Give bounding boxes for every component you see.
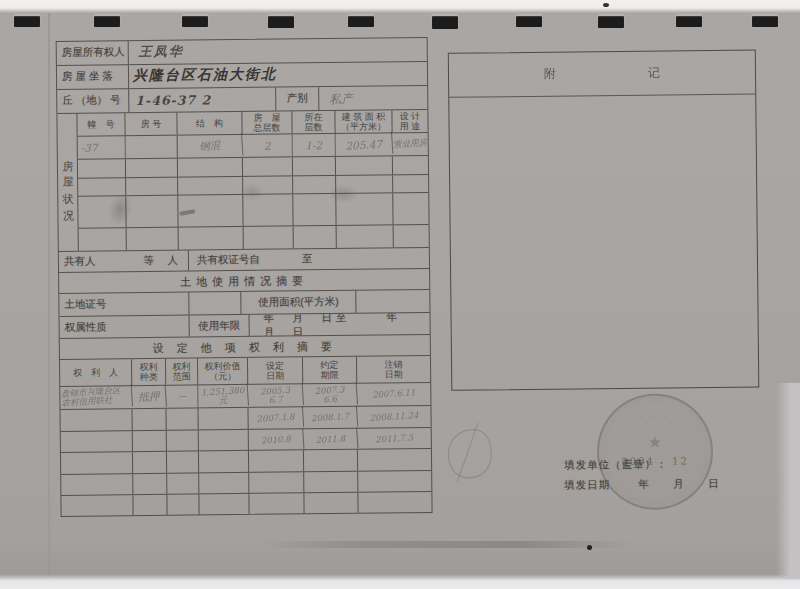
nature-label: 权属性质: [60, 316, 190, 338]
plot-label: 丘 （地） 号: [57, 89, 129, 113]
cancel-date-value: 2011.7.5: [357, 426, 431, 451]
house-status-vertical-label: 房屋状况: [57, 113, 78, 250]
building-no-value: -37: [78, 137, 126, 159]
land-cert-label: 土地证号: [59, 293, 189, 316]
plot-value: 1-46-37 2: [129, 87, 276, 111]
structure-value: 钢混: [177, 134, 243, 160]
category-value: 私产: [319, 84, 428, 112]
term-value: 2008.1.7: [303, 405, 358, 429]
col-building-no: 幢 号: [77, 113, 125, 136]
plot-row: 丘 （地） 号 1-46-37 2 产别 私产: [57, 86, 427, 114]
scan-speck: [587, 545, 592, 550]
house-status-empty-row: [78, 193, 428, 228]
other-rights-row-1: 盘锦市兴隆台区 农村信用联社 抵押 — 1,251,380元 2005.3 6.…: [60, 383, 430, 410]
stamp-arc-blur: ‥‥‥: [599, 409, 711, 420]
other-rights-empty-row: [61, 492, 431, 516]
official-stamp: ‥‥‥ ★ 2004 12: [596, 393, 713, 510]
term-label: 使用年限: [190, 315, 250, 337]
appendix-box: 附 记: [448, 50, 760, 391]
star-icon: ★: [648, 435, 663, 451]
col-right-kind: 权利 种类: [132, 359, 166, 385]
col-cancel-date: 注销 日期: [357, 356, 430, 383]
col-area: 建 筑 面 积 （平方米）: [335, 110, 392, 133]
col-total-floors: 房 屋 总层数: [242, 111, 292, 134]
scan-streak: [255, 541, 635, 548]
land-cert-value: [189, 292, 241, 314]
room-no-value: [126, 136, 178, 158]
set-date-value: 2005.3 6.7: [248, 383, 304, 408]
cancel-date-value: 2008.11.24: [357, 404, 431, 429]
house-status-empty-row: [79, 225, 429, 250]
handwritten-scribble: [443, 425, 496, 483]
use-value: 营业用房: [392, 132, 428, 156]
col-structure: 结 构: [177, 112, 242, 136]
other-rights-row-2: 2007.1.8 2008.1.7 2008.11.24: [60, 406, 430, 432]
land-area-label: 使用面积(平方米): [241, 291, 356, 314]
owner-label: 房屋所有权人: [57, 41, 129, 65]
floor-value: 1-2: [293, 134, 336, 156]
col-right-scope: 权利 范围: [166, 358, 198, 384]
location-value: 兴隆台区石油大街北: [129, 62, 427, 88]
col-right-value: 权利价值 （元）: [198, 358, 248, 384]
category-label: 产别: [276, 87, 319, 110]
form-sheet: 房屋所有权人 王凤华 房 屋 坐 落 兴隆台区石油大街北 丘 （地） 号 1-4…: [0, 0, 800, 589]
co-owner-to-label: 至: [302, 252, 313, 266]
co-owner-cert-label: 共有权证号自: [197, 253, 260, 268]
cancel-date-value: 2007.6.11: [357, 381, 431, 407]
col-use: 设 计 用 途: [392, 110, 427, 133]
house-status-section: 房屋状况 幢 号 房 号 结 构 房 屋 总层数 所在 层数 建 筑 面 积 （…: [57, 110, 428, 252]
location-label: 房 屋 坐 落: [57, 65, 129, 89]
term-dates: 年 月 日至 年 月 日: [250, 313, 430, 336]
area-value: 205.47: [335, 132, 393, 157]
appendix-title: 附 记: [449, 51, 755, 98]
col-right-holder: 权 利 人: [60, 359, 132, 386]
property-registration-form: 房屋所有权人 王凤华 房 屋 坐 落 兴隆台区石油大街北 丘 （地） 号 1-4…: [56, 37, 433, 517]
right-holder-value: 盘锦市兴隆台区 农村信用联社: [60, 384, 133, 410]
land-area-value: [356, 290, 429, 313]
set-date-value: 2010.8: [248, 427, 304, 451]
owner-value: 王凤华: [129, 38, 427, 64]
scanned-document-page: 房屋所有权人 王凤华 房 屋 坐 落 兴隆台区石油大街北 丘 （地） 号 1-4…: [0, 0, 800, 589]
col-floor: 所在 层数: [292, 111, 335, 134]
right-value-value: 1,251,380元: [198, 383, 249, 408]
set-date-value: 2007.1.8: [248, 406, 304, 430]
co-owner-label: 共有人: [64, 254, 96, 268]
issue-footer: 填发单位（盖章）： 填发日期 年 月 日: [564, 456, 779, 492]
other-rights-header-row: 权 利 人 权利 种类 权利 范围 权利价值 （元） 设定 日期 约定 期限 注…: [60, 356, 430, 387]
other-rights-row-3: 2010.8 2011.8 2011.7.5: [61, 428, 431, 454]
issuer-label: 填发单位（盖章）：: [564, 456, 779, 472]
co-owner-suffix: 等 人: [143, 254, 178, 268]
term-value: 2007.3 6.6: [303, 382, 358, 407]
total-floors-value: 2: [243, 135, 293, 157]
right-kind-value: 抵押: [132, 385, 167, 409]
issue-date-label: 填发日期: [564, 478, 610, 492]
scan-edge-band: [776, 383, 800, 579]
col-room-no: 房 号: [125, 112, 177, 135]
col-term: 约定 期限: [303, 357, 357, 383]
issue-date-units: 年 月 日: [638, 477, 726, 492]
right-scope-value: —: [166, 385, 198, 407]
col-set-date: 设定 日期: [248, 357, 303, 383]
term-value: 2011.8: [303, 427, 358, 451]
